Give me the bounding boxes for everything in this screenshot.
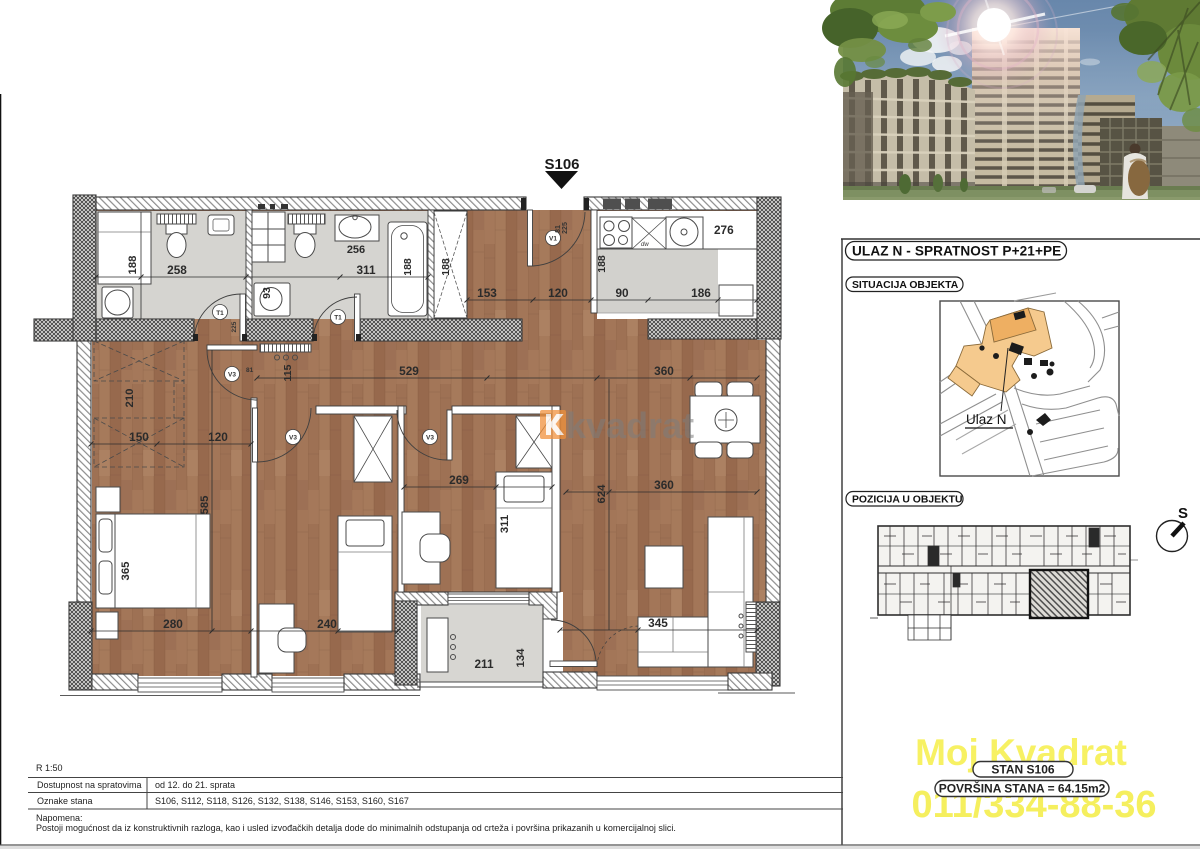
svg-text:256: 256 [347, 244, 365, 256]
svg-text:624: 624 [596, 484, 608, 504]
svg-text:186: 186 [691, 286, 711, 300]
svg-text:345: 345 [648, 616, 668, 630]
svg-text:Napomena:: Napomena: [36, 813, 83, 823]
svg-text:Dostupnost na spratovima: Dostupnost na spratovima [37, 780, 142, 790]
svg-text:81 225: 81 225 [555, 222, 569, 234]
svg-text:S106: S106 [544, 156, 579, 173]
svg-text:150: 150 [129, 430, 149, 444]
svg-text:T1: T1 [334, 315, 342, 322]
svg-text:SITUACIJA OBJEKTA: SITUACIJA OBJEKTA [852, 280, 959, 291]
svg-text:365: 365 [120, 562, 132, 581]
svg-text:V3: V3 [289, 435, 297, 442]
svg-text:120: 120 [548, 286, 568, 300]
svg-text:81: 81 [246, 367, 254, 374]
svg-text:V3: V3 [228, 372, 236, 379]
svg-text:Ulaz N: Ulaz N [966, 412, 1007, 427]
svg-text:210: 210 [124, 389, 136, 408]
svg-text:POZICIJA U OBJEKTU: POZICIJA U OBJEKTU [852, 495, 962, 506]
svg-text:od 12. do 21. sprata: od 12. do 21. sprata [155, 780, 235, 790]
svg-text:188: 188 [440, 258, 452, 276]
svg-text:Oznake stana: Oznake stana [37, 796, 93, 806]
svg-text:134: 134 [515, 648, 527, 668]
svg-text:ULAZ N - SPRATNOST P+21+PE: ULAZ N - SPRATNOST P+21+PE [852, 244, 1061, 259]
svg-text:STAN S106: STAN S106 [991, 763, 1054, 777]
svg-text:311: 311 [499, 515, 511, 533]
svg-text:188: 188 [596, 255, 608, 273]
svg-text:240: 240 [317, 617, 337, 631]
svg-text:dw: dw [641, 242, 649, 248]
svg-text:90: 90 [615, 286, 629, 300]
svg-text:S: S [1178, 505, 1188, 522]
svg-text:311: 311 [356, 263, 375, 277]
svg-text:V1: V1 [549, 236, 557, 243]
svg-text:360: 360 [654, 478, 674, 492]
svg-text:225: 225 [231, 321, 238, 332]
svg-text:R 1:50: R 1:50 [36, 763, 63, 773]
svg-text:276: 276 [714, 223, 734, 237]
svg-text:kvadrat: kvadrat [566, 405, 694, 446]
svg-text:360: 360 [654, 364, 674, 378]
svg-text:POVRŠINA STANA = 64.15m2: POVRŠINA STANA = 64.15m2 [939, 781, 1106, 796]
svg-text:115: 115 [282, 364, 294, 381]
svg-text:280: 280 [163, 617, 183, 631]
svg-text:Postoji mogućnost da iz konstr: Postoji mogućnost da iz konstruktivnih r… [36, 823, 676, 833]
svg-text:211: 211 [474, 657, 493, 671]
svg-text:585: 585 [199, 496, 211, 515]
svg-text:T1: T1 [216, 310, 224, 317]
svg-text:120: 120 [208, 430, 228, 444]
svg-text:93: 93 [261, 287, 273, 299]
svg-text:S106, S112, S118, S126, S132,: S106, S112, S118, S126, S132, S138, S146… [155, 796, 409, 806]
svg-text:269: 269 [449, 473, 469, 487]
svg-text:153: 153 [477, 286, 497, 300]
svg-text:V3: V3 [426, 435, 434, 442]
svg-text:188: 188 [127, 256, 139, 275]
svg-text:188: 188 [402, 258, 414, 276]
svg-text:258: 258 [167, 263, 187, 277]
svg-text:529: 529 [399, 364, 419, 378]
